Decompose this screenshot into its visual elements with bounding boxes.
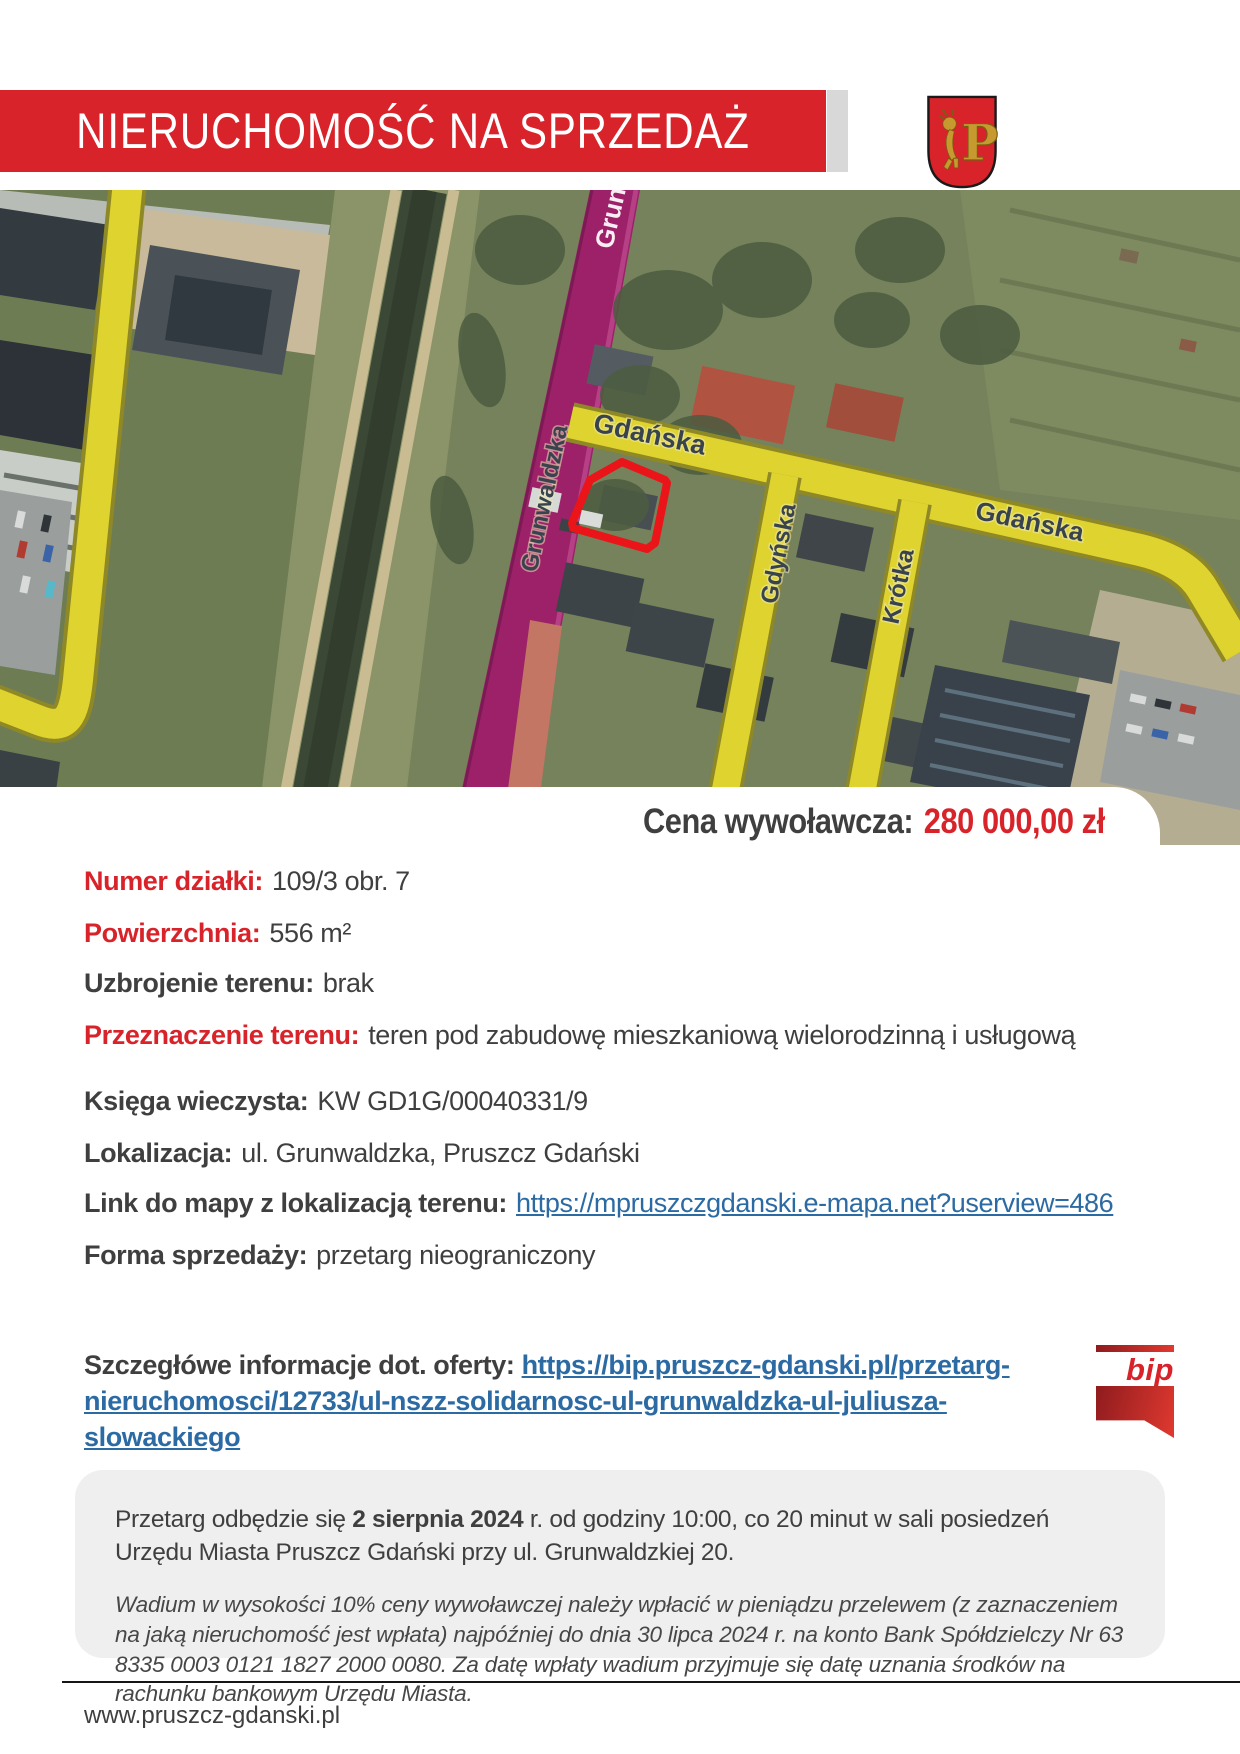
price-box: Cena wywoławcza:280 000,00 zł — [0, 787, 1160, 847]
detail-plot-number: Numer działki:109/3 obr. 7 — [84, 866, 410, 897]
deposit-paragraph: Wadium w wysokości 10% ceny wywoławczej … — [115, 1590, 1125, 1710]
price-value: 280 000,00 zł — [924, 802, 1105, 841]
auction-date-paragraph: Przetarg odbędzie się 2 sierpnia 2024 r.… — [115, 1504, 1125, 1570]
detail-sale-form: Forma sprzedaży:przetarg nieograniczony — [84, 1240, 595, 1271]
crest-shield-icon: P — [925, 95, 999, 189]
auction-date: 2 sierpnia 2024 — [352, 1506, 523, 1533]
bip-logo: bip — [1096, 1343, 1174, 1439]
detail-land-use: Przeznaczenie terenu:teren pod zabudowę … — [84, 1020, 1075, 1051]
aerial-map: Gdańska Gdańska Grunwaldzka Gdyńska Krót… — [0, 190, 1240, 845]
page-title: NIERUCHOMOŚĆ NA SPRZEDAŻ — [76, 102, 750, 160]
footer-url: www.pruszcz-gdanski.pl — [84, 1702, 340, 1730]
bip-topbar — [1096, 1345, 1174, 1352]
auction-notice-box: Przetarg odbędzie się 2 sierpnia 2024 r.… — [75, 1470, 1165, 1658]
detail-area: Powierzchnia:556 m² — [84, 918, 351, 949]
header-gray-divider — [827, 90, 848, 172]
bip-label: bip — [1126, 1352, 1174, 1388]
detail-land-register: Księga wieczysta:KW GD1G/00040331/9 — [84, 1086, 588, 1117]
offer-info: Szczegłówe informacje dot. oferty: https… — [84, 1348, 1049, 1456]
city-crest: P — [925, 95, 999, 189]
price-label: Cena wywoławcza: — [643, 802, 913, 841]
map-link[interactable]: https://mpruszczgdanski.e-mapa.net?userv… — [516, 1188, 1113, 1218]
bip-flag-icon — [1096, 1386, 1174, 1438]
footer-divider — [62, 1681, 1240, 1683]
header-band: NIERUCHOMOŚĆ NA SPRZEDAŻ — [0, 90, 826, 172]
detail-utilities: Uzbrojenie terenu:brak — [84, 968, 374, 999]
detail-map-link: Link do mapy z lokalizacją terenu:https:… — [84, 1188, 1113, 1219]
flyer-page: NIERUCHOMOŚĆ NA SPRZEDAŻ P — [0, 0, 1240, 1754]
offer-info-label: Szczegłówe informacje dot. oferty: — [84, 1350, 514, 1380]
svg-text:P: P — [961, 113, 999, 172]
detail-location: Lokalizacja:ul. Grunwaldzka, Pruszcz Gda… — [84, 1138, 640, 1169]
